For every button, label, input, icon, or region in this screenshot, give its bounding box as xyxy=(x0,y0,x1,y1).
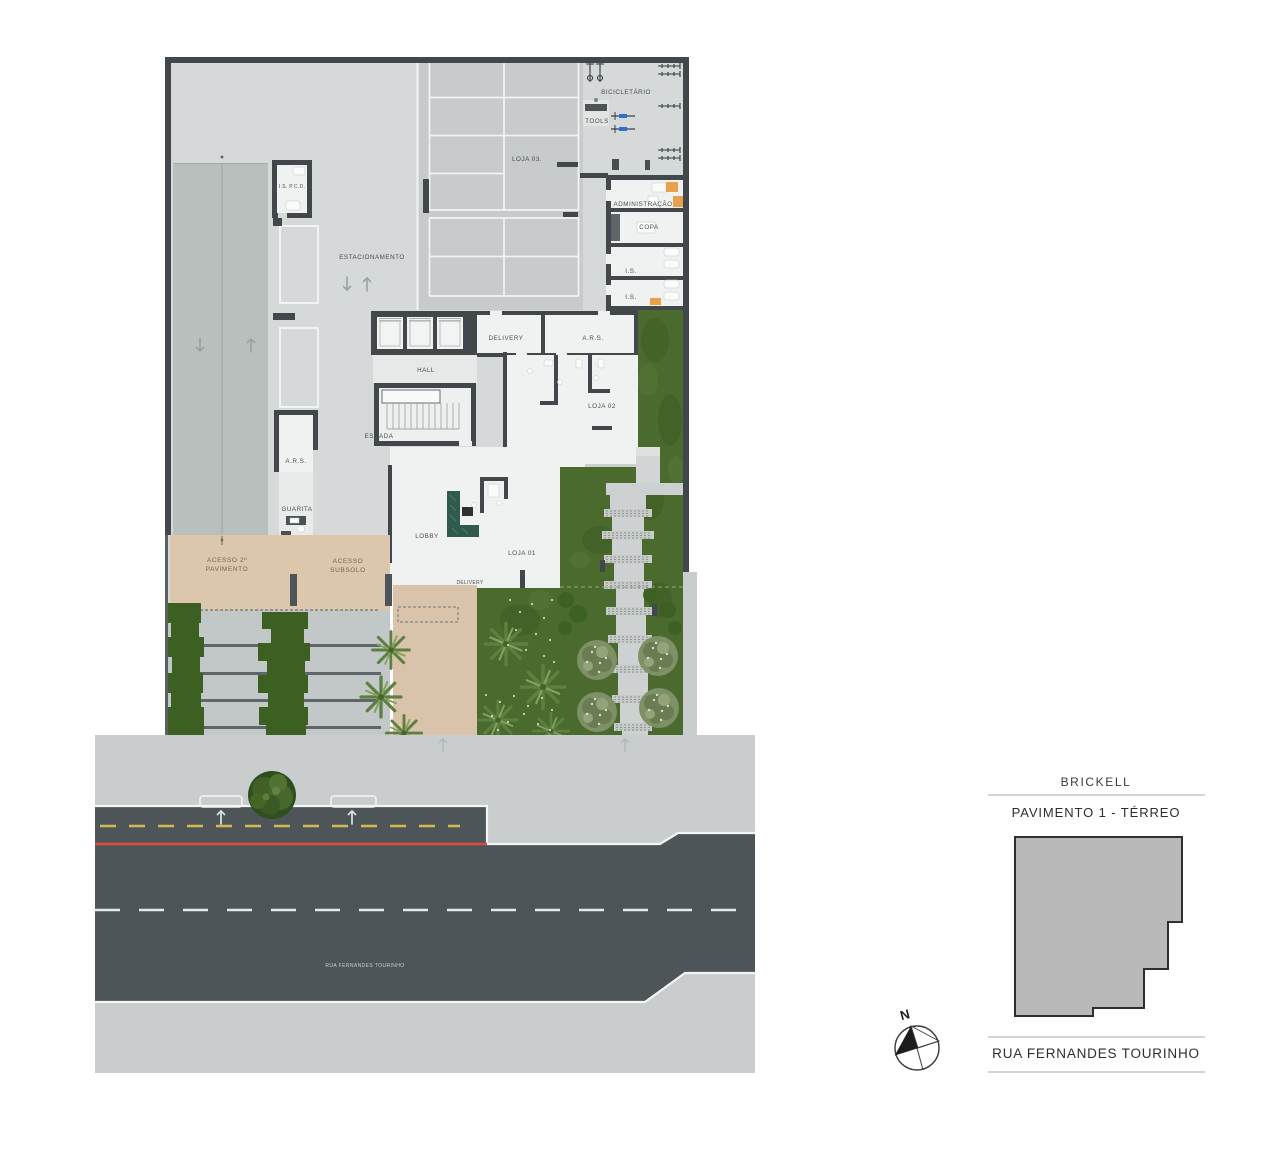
ars-guarita: A.R.S. GUARITA xyxy=(274,410,318,539)
is2-label: I.S. xyxy=(625,294,636,301)
compass-icon: N xyxy=(895,1006,939,1070)
sink-icon xyxy=(293,167,305,175)
street: RUA FERNANDES TOURINHO xyxy=(95,735,755,1073)
loja02-label: LOJA 02 xyxy=(588,403,616,410)
keyplan-shape xyxy=(1015,837,1182,1016)
stairs: ESCADA xyxy=(365,383,476,446)
floor-plan-page: LOJA 03. ADMINISTRAÇÃO COPA I.S. I.S. xyxy=(0,0,1280,1151)
walkway xyxy=(393,585,477,737)
acesso-pavimento-label: ACESSO 2º xyxy=(207,557,247,564)
elevator-block: HALL xyxy=(371,311,477,383)
floor-title: PAVIMENTO 1 - TÉRREO xyxy=(1012,805,1181,820)
guarita-label: GUARITA xyxy=(281,506,312,513)
administracao-label: ADMINISTRAÇÃO xyxy=(614,199,673,208)
svg-text:SUBSOLO: SUBSOLO xyxy=(330,567,366,574)
counter-icon xyxy=(611,214,620,241)
locker-icon xyxy=(645,160,650,170)
loja03-area: LOJA 03. xyxy=(417,57,583,310)
hall-label: HALL xyxy=(417,367,435,374)
svg-text:PAVIMENTO: PAVIMENTO xyxy=(206,566,249,573)
toilet-icon xyxy=(664,248,679,256)
toilet-icon xyxy=(664,280,679,288)
elevator-icon xyxy=(377,317,403,349)
toilet-icon xyxy=(576,359,582,368)
desk-icon xyxy=(652,183,666,192)
road-name-label: RUA FERNANDES TOURINHO xyxy=(325,963,404,969)
copa-label: COPA xyxy=(639,224,659,231)
project-title: BRICKELL xyxy=(1061,775,1132,789)
estacionamento-label: ESTACIONAMENTO xyxy=(339,254,405,261)
is-pcd-room: I.S. P.C.D. xyxy=(272,160,312,218)
bicicletario-label: BICICLETÁRIO xyxy=(601,87,651,96)
toilet-icon xyxy=(598,359,604,368)
loja01-label: LOJA 01 xyxy=(508,550,536,557)
toilet-icon xyxy=(488,484,499,497)
ars2-label: A.R.S. xyxy=(285,458,306,465)
is-pcd-label: I.S. P.C.D. xyxy=(279,184,305,190)
elevator-icon xyxy=(407,317,433,349)
sink-icon xyxy=(664,292,679,300)
ars1-label: A.R.S. xyxy=(582,335,603,342)
floor-plan-canvas: LOJA 03. ADMINISTRAÇÃO COPA I.S. I.S. xyxy=(0,0,1280,1151)
legend-panel: BRICKELL PAVIMENTO 1 - TÉRREO RUA FERNAN… xyxy=(988,775,1205,1072)
locker-icon xyxy=(612,159,619,170)
delivery-ars-row: DELIVERY A.R.S. xyxy=(477,311,638,357)
acesso-subsolo-label: ACESSO xyxy=(333,558,364,565)
escada-label: ESCADA xyxy=(365,433,394,440)
sink-icon xyxy=(664,260,679,268)
stair-landing xyxy=(382,390,440,403)
street-title: RUA FERNANDES TOURINHO xyxy=(992,1046,1200,1061)
tools-label: TOOLS xyxy=(585,118,609,125)
elevator-icon xyxy=(437,317,463,349)
chair-icon xyxy=(666,182,678,192)
corridor xyxy=(477,357,503,447)
loja03-label: LOJA 03. xyxy=(512,156,542,163)
tree-icon xyxy=(248,771,296,819)
delivery-label: DELIVERY xyxy=(488,335,523,342)
tools-table-icon xyxy=(585,104,607,111)
is1-label: I.S. xyxy=(625,268,636,275)
chair-icon xyxy=(462,507,473,516)
north-label: N xyxy=(898,1006,911,1023)
sink-icon xyxy=(544,360,553,366)
toilet-icon xyxy=(286,201,300,210)
lobby-label: LOBBY xyxy=(415,533,439,540)
chair-icon xyxy=(673,196,683,207)
chair-icon xyxy=(298,526,305,533)
